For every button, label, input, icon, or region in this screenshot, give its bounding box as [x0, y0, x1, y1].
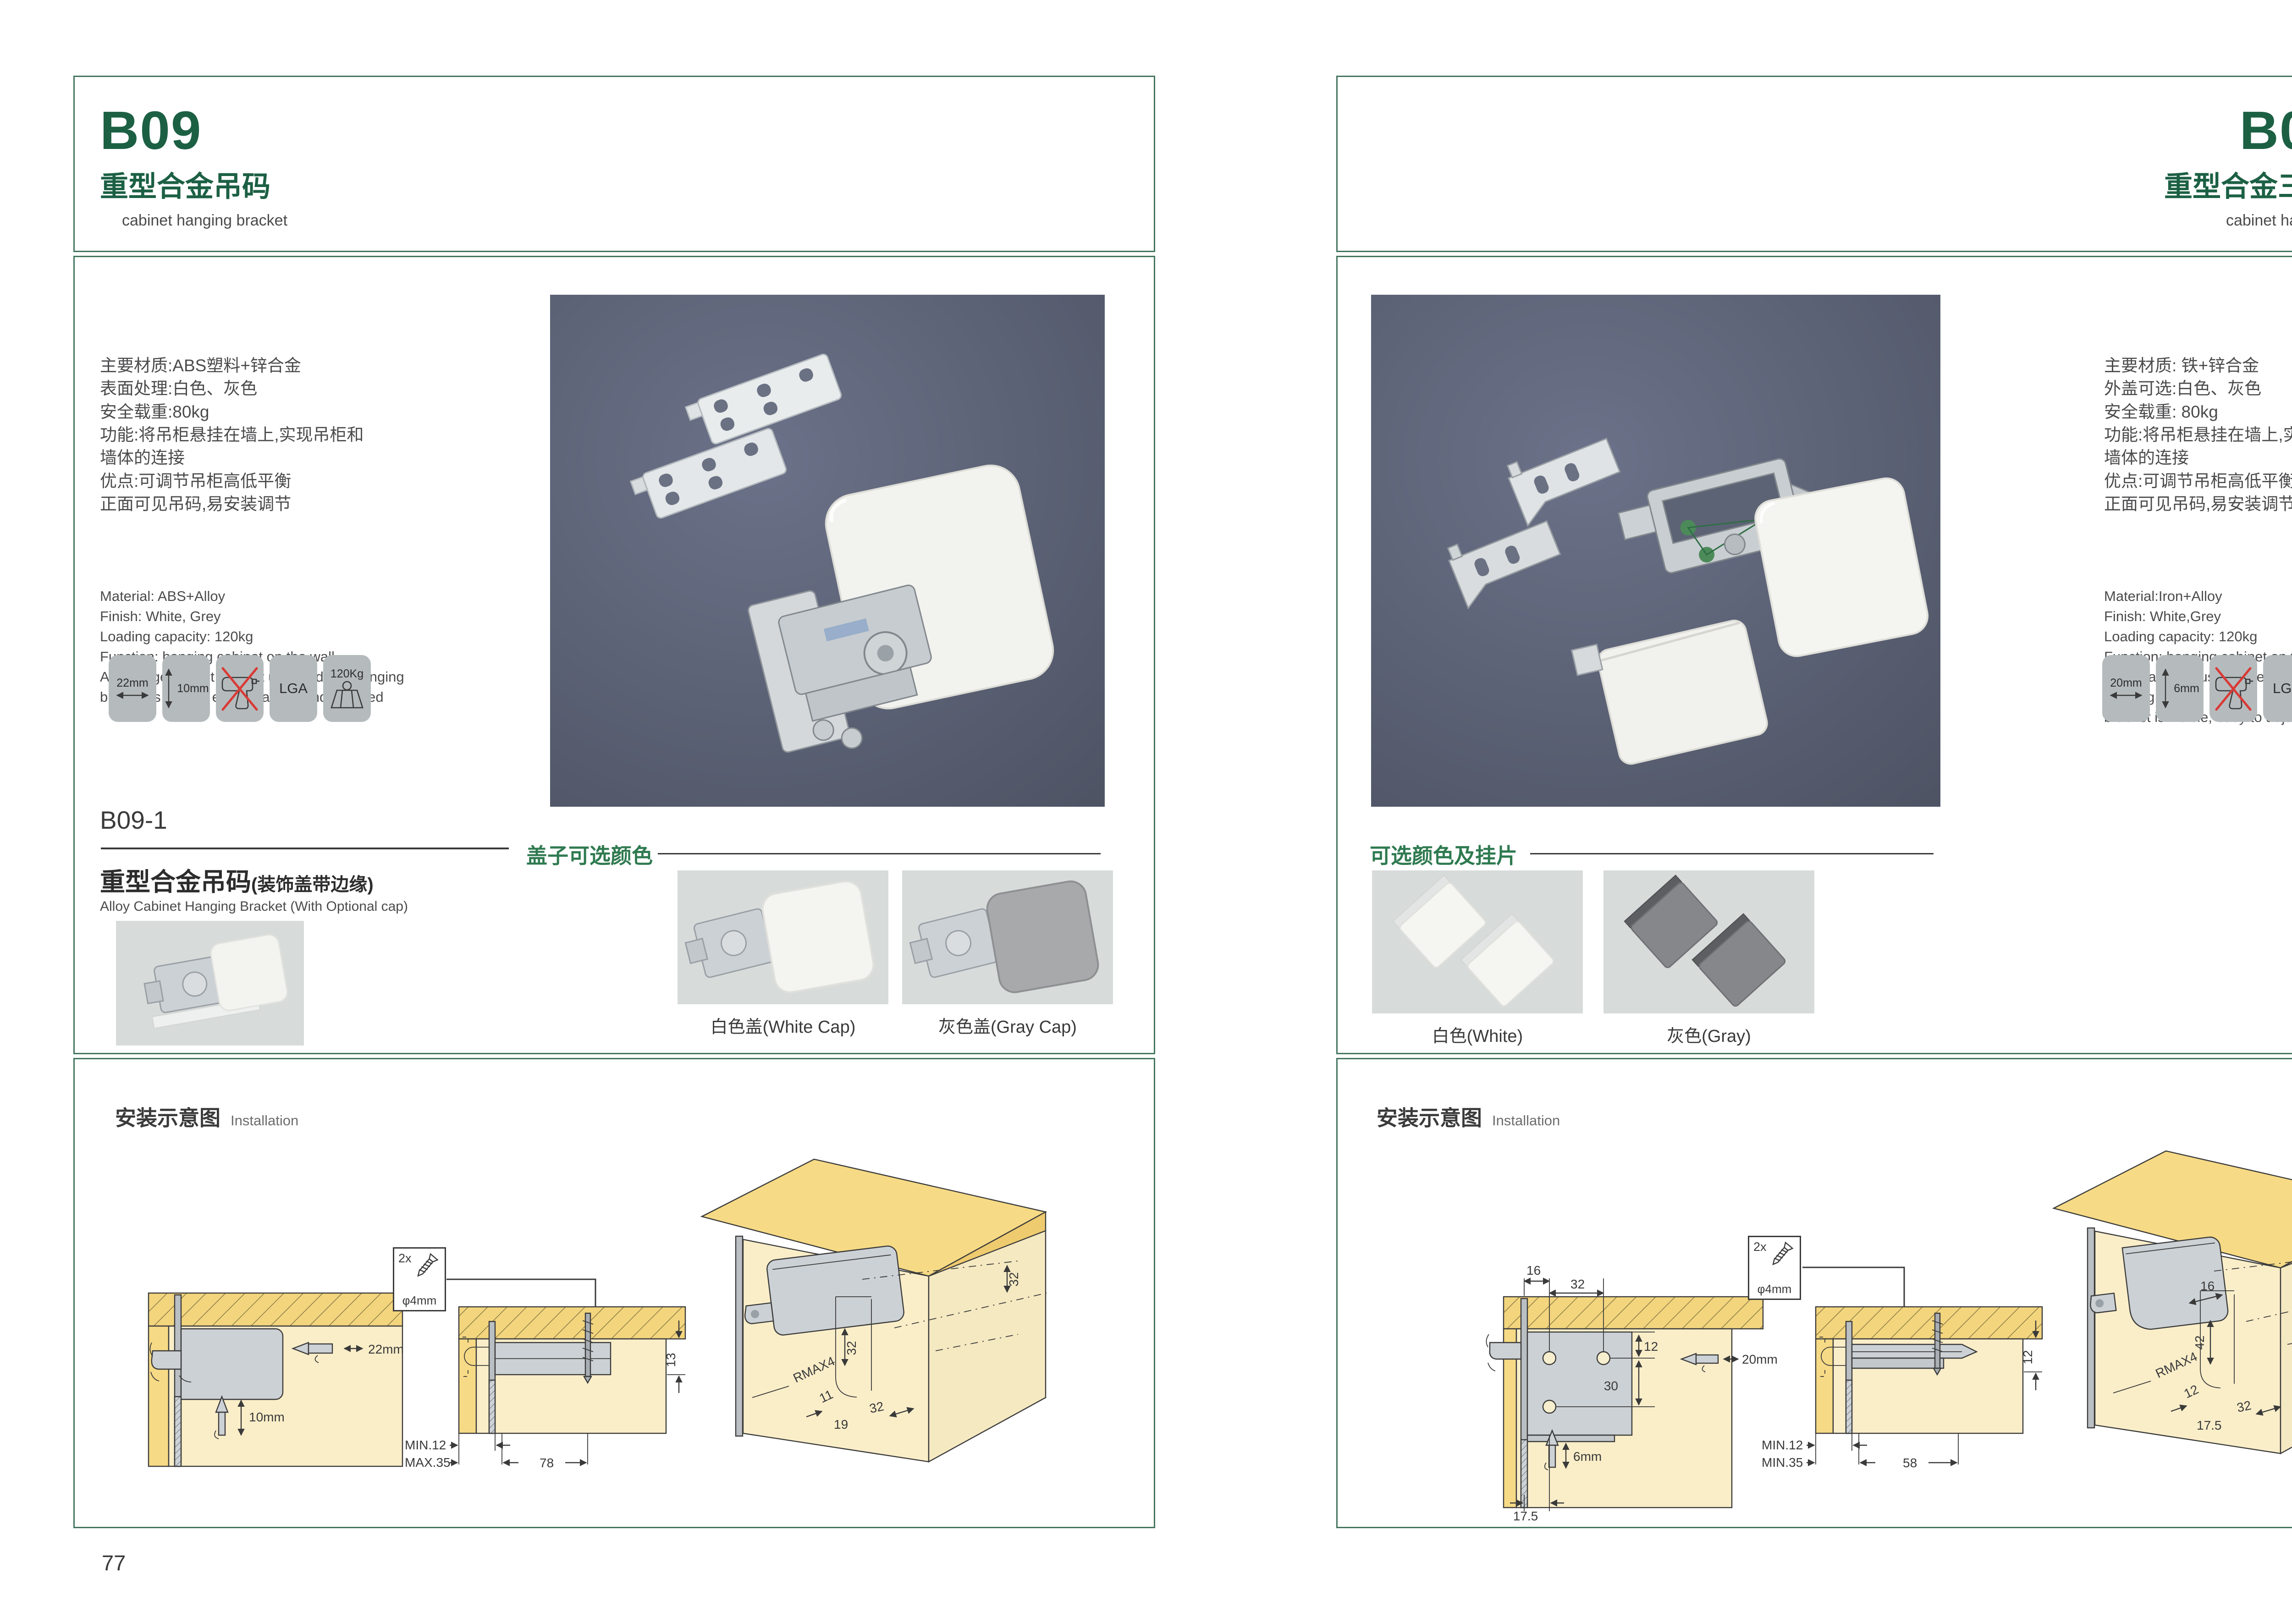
lga-badge: LGA — [2263, 655, 2292, 722]
dim-label: 12 — [1644, 1339, 1658, 1354]
main-product-photo — [550, 295, 1105, 807]
vertical-arrow-icon — [2160, 666, 2171, 711]
width-badge: 22mm — [109, 655, 156, 722]
spec-line: 优点:可调节吊柜高低平衡 — [2104, 470, 2292, 493]
horizontal-arrow-icon — [2107, 690, 2145, 701]
installation-heading: 安装示意图Installation — [1377, 1101, 1560, 1132]
product-title-cn: 重型合金三孔吊码 — [2164, 163, 2292, 204]
dim-label: 22mm — [368, 1342, 404, 1356]
color-options-heading: 可选颜色及挂片 — [1370, 839, 1517, 870]
dim-label: 17.5 — [2197, 1418, 2222, 1432]
screw-icon — [1764, 1239, 1799, 1274]
height-badge-label: 10mm — [177, 682, 209, 695]
spec-line: 正面可见吊码,易安装调节 — [2104, 493, 2292, 516]
install-diagram-3d: 32 32 RMAX4 11 19 32 — [697, 1141, 1051, 1488]
installation-heading-cn: 安装示意图 — [115, 1106, 220, 1130]
screw-spec-box: 2x φ4mm — [1748, 1236, 1801, 1300]
weight-icon — [327, 681, 367, 710]
dim-label: 6mm — [1573, 1449, 1602, 1464]
dim-label: MIN.12 — [1762, 1438, 1803, 1452]
dim-label: 16 — [2200, 1279, 2215, 1293]
sub-product-code: B09-1 — [100, 805, 167, 835]
feature-badges: 22mm 10mm LGA 120Kg — [109, 655, 371, 722]
dim-label: 16 — [1526, 1263, 1541, 1277]
gray-cap-photo — [902, 870, 1113, 1004]
spec-line: Loading capacity: 120kg — [100, 627, 535, 647]
gray-clip-caption: 灰色(Gray) — [1603, 1022, 1814, 1047]
white-clip-photo — [1372, 870, 1583, 1013]
lga-badge: LGA — [270, 655, 317, 722]
product-title-cn: 重型合金吊码 — [100, 163, 270, 204]
page-number-left: 77 — [102, 1550, 126, 1575]
width-badge-label: 20mm — [2110, 677, 2142, 690]
spec-line: 功能:将吊柜悬挂在墙上,实现吊柜和 — [2104, 424, 2292, 446]
spec-line: 墙体的连接 — [2104, 446, 2292, 469]
cap-options-rule — [658, 853, 1101, 854]
gray-clip-photo — [1603, 870, 1814, 1013]
right-main-box: 主要材质: 铁+锌合金 外盖可选:白色、灰色 安全载重: 80kg 功能:将吊柜… — [1336, 256, 2292, 1054]
install-diagram-holes: 16 32 12 30 20mm 6mm 17.5 — [1481, 1238, 1783, 1522]
height-badge: 10mm — [162, 655, 210, 722]
height-badge-label: 6mm — [2174, 682, 2199, 695]
spec-line: Finish: White,Grey — [2104, 606, 2292, 627]
lga-badge-label: LGA — [279, 680, 308, 697]
spec-line: 安全载重:80kg — [100, 401, 535, 424]
left-header-box: B09 重型合金吊码 cabinet hanging bracket — [73, 76, 1155, 252]
install-diagram-side: 12 MIN.12 MIN.35 58 — [1761, 1293, 2044, 1471]
spec-line: 外盖可选:白色、灰色 — [2104, 377, 2292, 400]
spec-line: Material: ABS+Alloy — [100, 586, 535, 606]
height-badge: 6mm — [2156, 655, 2204, 722]
spec-line: 正面可见吊码,易安装调节 — [100, 493, 535, 516]
no-drill-badge — [2209, 655, 2257, 722]
spec-line: Loading capacity: 120kg — [2104, 627, 2292, 647]
sub-product-rule — [101, 848, 509, 849]
product-code: B09-3 — [2240, 104, 2292, 158]
white-cap-photo — [678, 870, 888, 1004]
white-clip-caption: 白色(White) — [1372, 1022, 1583, 1047]
right-install-box: 安装示意图Installation 16 32 12 30 20mm 6mm 1… — [1336, 1058, 2292, 1528]
dim-label: 10mm — [249, 1410, 285, 1424]
width-badge-label: 22mm — [116, 677, 148, 690]
dim-label: MIN.12 — [405, 1438, 446, 1452]
product-title-en: cabinet hanging bracket — [122, 212, 287, 230]
right-header-box: B09-3 重型合金三孔吊码 cabinet hanging bracket — [1336, 76, 2292, 252]
main-product-photo — [1371, 295, 1940, 807]
dim-label: 32 — [844, 1341, 859, 1355]
white-cap-caption: 白色盖(White Cap) — [678, 1013, 888, 1038]
left-install-box: 安装示意图Installation 22mm 10mm 2x φ4mm — [73, 1058, 1155, 1528]
screw-icon — [409, 1250, 444, 1285]
load-badge: 120Kg — [323, 655, 371, 722]
width-badge: 20mm — [2102, 655, 2150, 722]
installation-heading-en: Installation — [1492, 1112, 1560, 1129]
sub-product-title-en: Alloy Cabinet Hanging Bracket (With Opti… — [100, 899, 408, 914]
dim-label: 32 — [2236, 1398, 2253, 1415]
dim-label: MAX.35 — [405, 1455, 451, 1470]
spec-line: Material:Iron+Alloy — [2104, 586, 2292, 606]
load-badge-label: 120Kg — [331, 667, 364, 681]
specs-chinese: 主要材质:ABS塑料+锌合金 表面处理:白色、灰色 安全载重:80kg 功能:将… — [100, 354, 535, 516]
spec-line: Finish: White, Grey — [100, 606, 535, 627]
dim-label: 17.5 — [1513, 1509, 1538, 1522]
no-drill-icon — [2214, 664, 2253, 713]
spec-line: 优点:可调节吊柜高低平衡 — [100, 470, 535, 493]
install-diagram-3d: 12 16 42 RMAX4 12 17.5 32 — [2049, 1133, 2292, 1482]
sub-title-main: 重型合金吊码 — [100, 868, 251, 896]
dim-label: 58 — [1903, 1456, 1917, 1470]
dim-label: 42 — [2193, 1335, 2207, 1349]
catalog-spread: B09 重型合金吊码 cabinet hanging bracket 主要材质:… — [0, 0, 2292, 1624]
cap-options-heading: 盖子可选颜色 — [526, 839, 653, 870]
dim-label: 30 — [1604, 1379, 1618, 1393]
spec-line: 安全载重: 80kg — [2104, 401, 2292, 424]
feature-badges: 20mm 6mm LGA 120Kg — [2102, 655, 2292, 722]
dim-label: 12 — [2021, 1350, 2035, 1364]
dim-label: 32 — [1570, 1277, 1585, 1291]
lga-badge-label: LGA — [2273, 680, 2292, 697]
install-diagram-side: 13 MIN.12 MAX.35 78 — [404, 1293, 687, 1471]
sub-product-photo — [116, 921, 304, 1046]
gray-cap-caption: 灰色盖(Gray Cap) — [902, 1013, 1113, 1038]
specs-chinese: 主要材质: 铁+锌合金 外盖可选:白色、灰色 安全载重: 80kg 功能:将吊柜… — [2104, 354, 2292, 516]
dim-label: 13 — [664, 1353, 678, 1367]
vertical-arrow-icon — [163, 666, 174, 711]
sub-title-paren: (装饰盖带边缘) — [251, 875, 374, 895]
product-title-en: cabinet hanging bracket — [2226, 212, 2292, 230]
product-code: B09 — [100, 104, 202, 158]
dim-label: 32 — [868, 1399, 885, 1416]
white-cover-side — [1752, 475, 1931, 660]
spec-line: 主要材质:ABS塑料+锌合金 — [100, 354, 535, 377]
left-main-box: 主要材质:ABS塑料+锌合金 表面处理:白色、灰色 安全载重:80kg 功能:将… — [73, 256, 1155, 1054]
install-diagram-section: 22mm 10mm — [147, 1274, 404, 1468]
horizontal-arrow-icon — [113, 690, 152, 701]
dim-label: 78 — [540, 1456, 554, 1470]
spec-line: 墙体的连接 — [100, 446, 535, 469]
installation-heading-cn: 安装示意图 — [1377, 1106, 1482, 1130]
color-options-rule — [1530, 853, 1934, 854]
sub-product-title-cn: 重型合金吊码(装饰盖带边缘) — [100, 861, 374, 898]
spec-line: 表面处理:白色、灰色 — [100, 377, 535, 400]
no-drill-badge — [216, 655, 264, 722]
no-drill-icon — [220, 664, 259, 713]
dim-label: 32 — [1007, 1272, 1021, 1286]
installation-heading: 安装示意图Installation — [115, 1101, 298, 1132]
spec-line: 主要材质: 铁+锌合金 — [2104, 354, 2292, 377]
installation-heading-en: Installation — [231, 1112, 298, 1129]
dim-label: MIN.35 — [1762, 1455, 1803, 1470]
spec-line: 功能:将吊柜悬挂在墙上,实现吊柜和 — [100, 424, 535, 446]
dim-label: 19 — [834, 1417, 848, 1431]
